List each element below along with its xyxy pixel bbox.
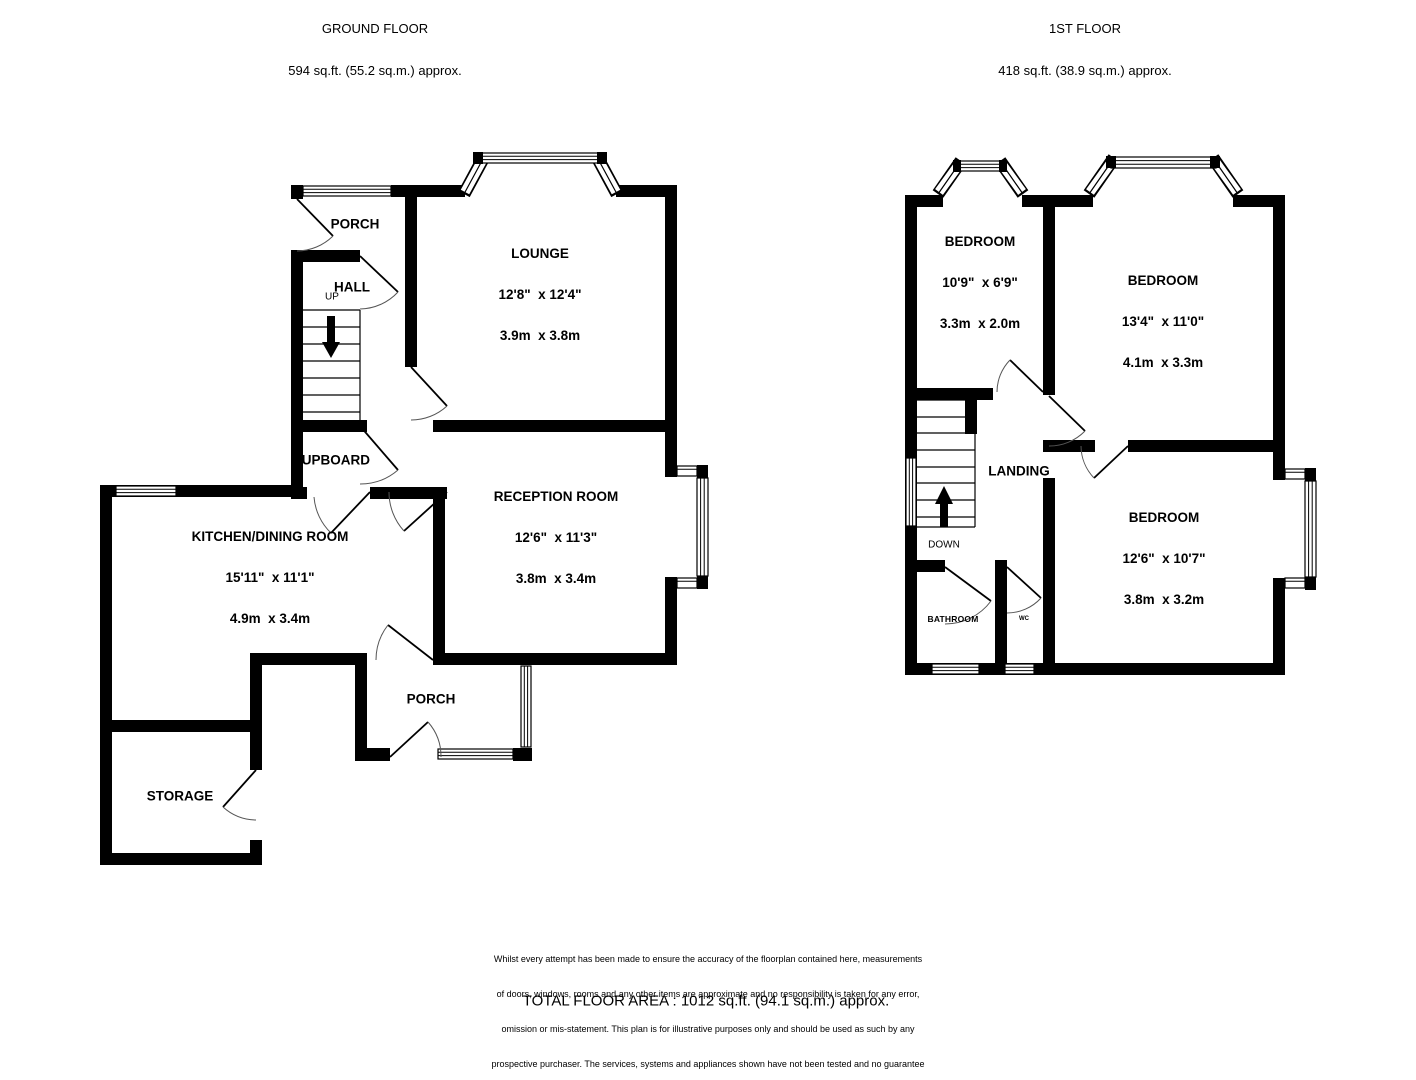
disclaimer-line: of doors, windows, rooms and any other i…	[491, 989, 924, 1001]
door-lounge	[411, 367, 447, 420]
bedroom-back-label: BEDROOM 12'6" x 10'7" 3.8m x 3.2m	[1122, 483, 1205, 635]
hall-label: HALL	[334, 280, 370, 295]
storage-label: STORAGE	[147, 789, 214, 804]
window-porch-bottom	[438, 666, 531, 759]
window-kitchen	[116, 486, 176, 496]
door-wc	[1007, 567, 1041, 613]
room-name: LOUNGE	[498, 247, 581, 261]
door-front	[297, 199, 333, 251]
porch-bottom-label: PORCH	[407, 692, 456, 707]
bedroom-front-label: BEDROOM 13'4" x 11'0" 4.1m x 3.3m	[1122, 246, 1204, 398]
ground-floor-area: 594 sq.ft. (55.2 sq.m.) approx.	[288, 64, 461, 78]
disclaimer-line: Whilst every attempt has been made to en…	[491, 954, 924, 966]
room-name: BEDROOM	[1122, 274, 1204, 288]
bay-window-reception	[677, 465, 708, 589]
disclaimer-line: omission or mis-statement. This plan is …	[491, 1024, 924, 1036]
first-floor-header: 1ST FLOOR 418 sq.ft. (38.9 sq.m.) approx…	[998, 0, 1171, 106]
room-dims-imperial: 12'6" x 10'7"	[1122, 552, 1205, 566]
room-dims-imperial: 13'4" x 11'0"	[1122, 315, 1204, 329]
window-landing	[906, 458, 916, 526]
cupboard-label: CUPBOARD	[292, 453, 370, 468]
bay-window-lounge	[464, 152, 617, 194]
room-dims-imperial: 12'8" x 12'4"	[498, 288, 581, 302]
lounge-label: LOUNGE 12'8" x 12'4" 3.9m x 3.8m	[498, 219, 581, 371]
up-arrow-icon	[322, 316, 340, 358]
down-label: DOWN	[928, 540, 960, 551]
room-dims-metric: 4.9m x 3.4m	[192, 612, 349, 626]
window-porch-top	[303, 186, 391, 196]
room-dims-imperial: 12'6" x 11'3"	[494, 531, 619, 545]
disclaimer-line: prospective purchaser. The services, sys…	[491, 1059, 924, 1071]
reception-label: RECEPTION ROOM 12'6" x 11'3" 3.8m x 3.4m	[494, 462, 619, 614]
room-dims-imperial: 10'9" x 6'9"	[940, 276, 1020, 290]
landing-label: LANDING	[988, 464, 1050, 479]
room-dims-metric: 3.8m x 3.4m	[494, 572, 619, 586]
room-name: BEDROOM	[940, 235, 1020, 249]
bay-window-bedroom-back	[1285, 468, 1316, 590]
room-dims-metric: 4.1m x 3.3m	[1122, 356, 1204, 370]
room-dims-metric: 3.8m x 3.2m	[1122, 593, 1205, 607]
bathroom-label: BATHROOM	[927, 614, 978, 624]
room-name: RECEPTION ROOM	[494, 490, 619, 504]
bay-window-bedroom-small	[938, 160, 1023, 194]
first-floor-title: 1ST FLOOR	[998, 22, 1171, 36]
floorplan-page: GROUND FLOOR 594 sq.ft. (55.2 sq.m.) app…	[0, 0, 1416, 1080]
ground-floor-header: GROUND FLOOR 594 sq.ft. (55.2 sq.m.) app…	[288, 0, 461, 106]
first-floor-area: 418 sq.ft. (38.9 sq.m.) approx.	[998, 64, 1171, 78]
disclaimer: Whilst every attempt has been made to en…	[491, 931, 924, 1080]
door-bedroom-front	[1049, 396, 1085, 446]
room-dims-imperial: 15'11" x 11'1"	[192, 571, 349, 585]
room-name: KITCHEN/DINING ROOM	[192, 530, 349, 544]
door-storage	[223, 770, 256, 820]
room-dims-metric: 3.3m x 2.0m	[940, 317, 1020, 331]
ground-floor-title: GROUND FLOOR	[288, 22, 461, 36]
door-porch-inner	[376, 625, 433, 660]
bedroom-small-label: BEDROOM 10'9" x 6'9" 3.3m x 2.0m	[940, 207, 1020, 359]
window-wc	[1005, 664, 1034, 674]
stairs-ground	[303, 310, 360, 420]
room-dims-metric: 3.9m x 3.8m	[498, 329, 581, 343]
porch-top-label: PORCH	[331, 217, 380, 232]
door-porch-outer	[390, 722, 441, 757]
window-bathroom	[932, 664, 979, 674]
kitchen-label: KITCHEN/DINING ROOM 15'11" x 11'1" 4.9m …	[192, 502, 349, 654]
wc-label: WC	[1019, 616, 1029, 622]
up-label: UP	[325, 292, 339, 303]
down-arrow-icon	[935, 486, 953, 527]
room-name: BEDROOM	[1122, 511, 1205, 525]
bay-window-bedroom-front	[1089, 156, 1238, 194]
door-bedroom-small	[997, 360, 1043, 392]
